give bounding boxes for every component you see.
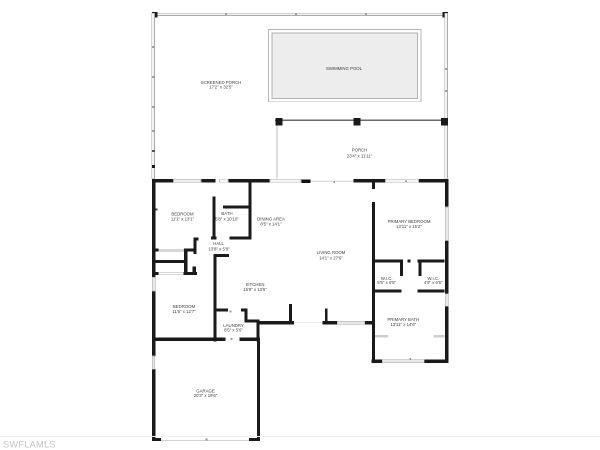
svg-text:SWFLAMLS: SWFLAMLS	[3, 440, 56, 450]
svg-text:13'11" x 15'2": 13'11" x 15'2"	[396, 224, 422, 229]
svg-text:23'4" x 11'11": 23'4" x 11'11"	[347, 153, 373, 158]
svg-text:4'9" x 6'5": 4'9" x 6'5"	[424, 280, 443, 285]
svg-text:LIVING ROOM: LIVING ROOM	[317, 250, 346, 255]
svg-text:13'11" x 14'6": 13'11" x 14'6"	[390, 322, 416, 327]
svg-text:17'2" x 32'5": 17'2" x 32'5"	[209, 85, 233, 90]
svg-text:14'1" x 27'6": 14'1" x 27'6"	[319, 256, 343, 261]
svg-text:15'8" x 13'5": 15'8" x 13'5"	[243, 287, 267, 292]
svg-text:5'8" x 10'10": 5'8" x 10'10"	[215, 216, 239, 221]
svg-text:8'5" x 5'6": 8'5" x 5'6"	[224, 328, 243, 333]
svg-text:11'1" x 13'1": 11'1" x 13'1"	[171, 217, 195, 222]
svg-text:5'5" x 6'5": 5'5" x 6'5"	[377, 280, 396, 285]
svg-text:20'3" x 19'6": 20'3" x 19'6"	[194, 393, 218, 398]
svg-text:8'5" x 14'1": 8'5" x 14'1"	[260, 222, 282, 227]
svg-text:11'6" x 12'7": 11'6" x 12'7"	[172, 309, 196, 314]
svg-text:13'8" x 5'8": 13'8" x 5'8"	[208, 246, 230, 251]
svg-text:SWIMMING POOL: SWIMMING POOL	[326, 66, 363, 71]
svg-text:PORCH: PORCH	[352, 148, 368, 153]
